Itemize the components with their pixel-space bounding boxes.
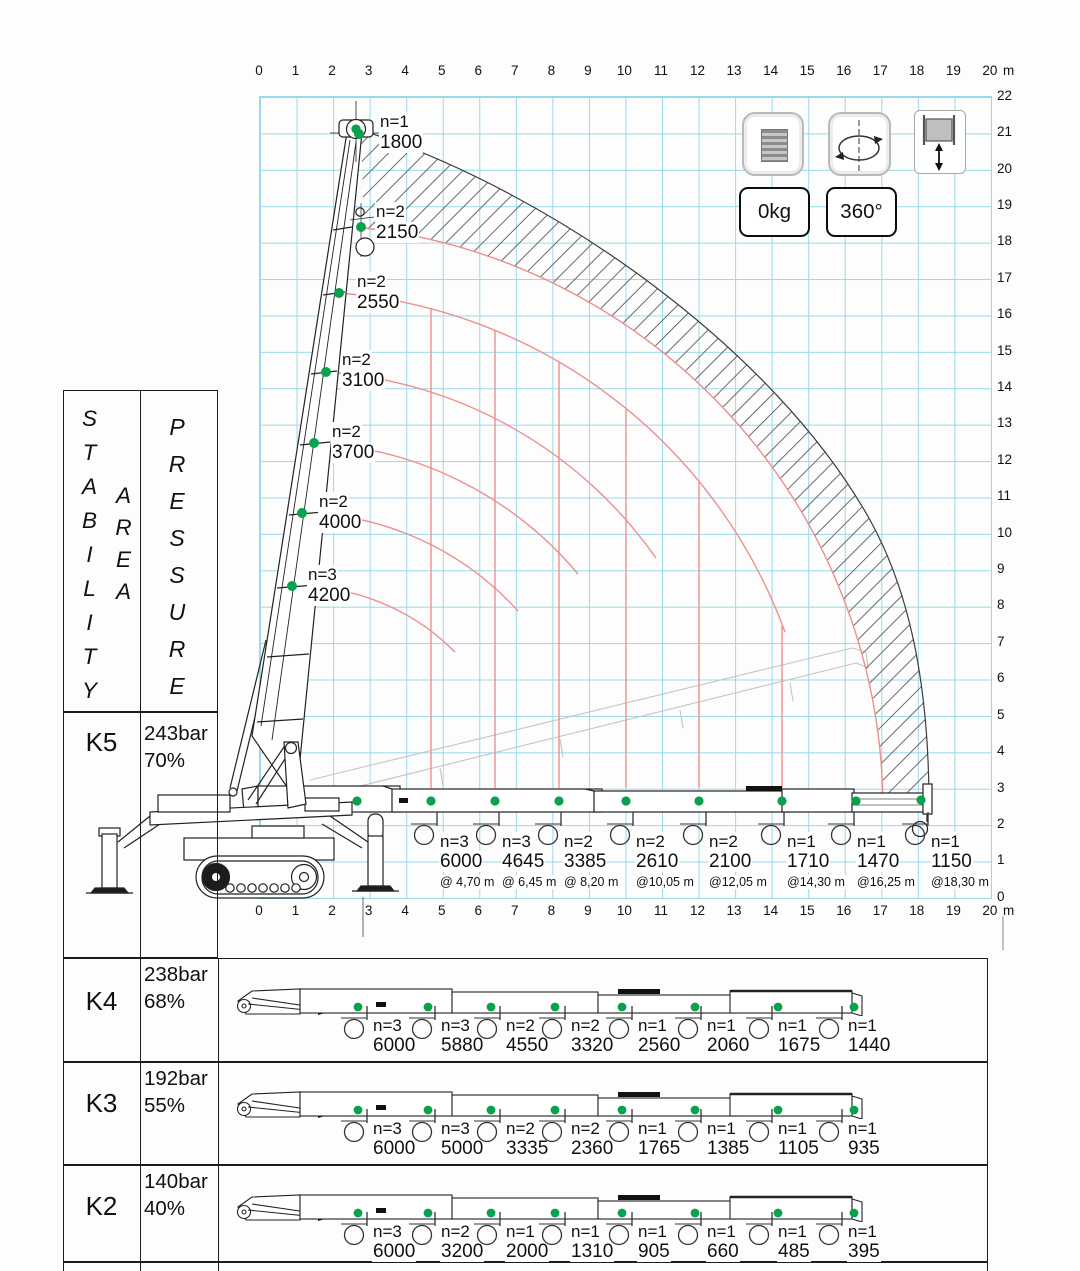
column-divider <box>218 1166 219 1261</box>
hook-icon <box>339 1109 373 1145</box>
row-pressure-k3: 192bar 55% <box>144 1065 208 1119</box>
hook-icon <box>472 1212 506 1248</box>
hook-icon <box>744 1006 778 1042</box>
hook-icon <box>756 812 790 848</box>
hook-icon <box>533 812 567 848</box>
axis-tick: 7 <box>994 624 1012 660</box>
row-key-k3: K3 <box>63 1088 140 1119</box>
hook-icon <box>472 1109 506 1145</box>
table-row-partial-box <box>63 1262 988 1271</box>
axis-tick: 19 <box>935 63 972 78</box>
hook-icon <box>537 1212 571 1248</box>
axis-tick: 2 <box>994 806 1012 842</box>
pressure-percent: 70% <box>144 747 208 774</box>
axis-tick: 13 <box>716 63 753 78</box>
crane-load-chart-page: 01234567891011121314151617181920 m 01234… <box>0 0 1080 1271</box>
header-pressure: PRESSURE <box>163 414 195 710</box>
axis-tick: 5 <box>423 63 460 78</box>
boom-load-label: n=2 3100 <box>341 350 385 391</box>
hook-icon <box>339 1006 373 1042</box>
axis-right: 222120191817161514131211109876543210 <box>994 78 1012 915</box>
radius-load-label: n=1 1150 @18,30 m <box>930 832 990 889</box>
hook-icon <box>407 1109 441 1145</box>
hook-icon <box>814 1006 848 1042</box>
axis-tick: 5 <box>994 697 1012 733</box>
boom-load-label: n=2 2150 <box>375 202 419 243</box>
hook-icon <box>744 1109 778 1145</box>
hook-icon <box>900 812 934 848</box>
pressure-value: 238bar <box>144 961 208 988</box>
row-pressure-k5: 243bar 70% <box>144 720 208 774</box>
axis-tick: 14 <box>752 63 789 78</box>
axis-tick: 4 <box>994 733 1012 769</box>
hook-icon <box>605 812 639 848</box>
axis-tick: 18 <box>994 223 1012 259</box>
row-pressure-k4: 238bar 68% <box>144 961 208 1015</box>
axis-tick: 0 <box>241 63 278 78</box>
axis-tick: 17 <box>862 903 899 918</box>
load-label: n=1 485 <box>777 1222 811 1262</box>
axis-tick: 4 <box>387 903 424 918</box>
axis-tick: 15 <box>994 333 1012 369</box>
axis-tick: 10 <box>994 515 1012 551</box>
axis-tick: 8 <box>533 903 570 918</box>
axis-tick: 3 <box>350 63 387 78</box>
axis-tick: 13 <box>994 405 1012 441</box>
hook-icon <box>537 1006 571 1042</box>
hook-icon <box>604 1109 638 1145</box>
axis-tick: 11 <box>994 478 1012 514</box>
hook-icon <box>407 1212 441 1248</box>
hook-icon <box>471 812 505 848</box>
axis-tick: 2 <box>314 903 351 918</box>
axis-tick: 3 <box>350 903 387 918</box>
boom-load-label: n=2 4000 <box>318 492 362 533</box>
axis-tick: 8 <box>994 587 1012 623</box>
pressure-percent: 68% <box>144 988 208 1015</box>
column-divider <box>218 1063 219 1164</box>
axis-tick: 3 <box>994 770 1012 806</box>
boom-load-label: n=1 1800 <box>379 112 423 153</box>
axis-tick: 15 <box>789 63 826 78</box>
hook-icon <box>604 1006 638 1042</box>
axis-tick: 12 <box>679 903 716 918</box>
hook-icon <box>409 812 443 848</box>
hook-icon <box>673 1212 707 1248</box>
hook-icon <box>339 1212 373 1248</box>
axis-tick: 8 <box>533 63 570 78</box>
axis-tick: 11 <box>643 903 680 918</box>
load-label: n=1 1440 <box>847 1016 891 1056</box>
winch-hook-icon <box>914 110 966 174</box>
axis-tick: 16 <box>825 903 862 918</box>
axis-tick: 19 <box>994 187 1012 223</box>
axis-unit-top: m <box>1003 63 1014 78</box>
slew-glyph <box>830 114 889 174</box>
axis-bottom: 01234567891011121314151617181920 <box>241 903 1008 918</box>
counterweight-plates-glyph <box>761 129 788 162</box>
axis-tick: 5 <box>423 903 460 918</box>
pressure-percent: 55% <box>144 1092 208 1119</box>
counterweight-value-button[interactable]: 0kg <box>739 187 810 237</box>
axis-tick: 19 <box>935 903 972 918</box>
axis-tick: 1 <box>994 842 1012 878</box>
axis-tick: 10 <box>606 63 643 78</box>
axis-tick: 6 <box>460 903 497 918</box>
hook-icon <box>673 1006 707 1042</box>
axis-tick: 14 <box>752 903 789 918</box>
axis-tick: 0 <box>994 879 1012 915</box>
boom-load-label: n=3 4200 <box>307 565 351 606</box>
pressure-percent: 40% <box>144 1195 208 1222</box>
load-label: n=1 935 <box>847 1119 881 1159</box>
column-divider <box>218 1263 219 1271</box>
load-label: n=1 905 <box>637 1222 671 1262</box>
axis-tick: 9 <box>570 903 607 918</box>
header-stability: STABILITY <box>76 406 108 712</box>
load-label: n=1 660 <box>706 1222 740 1262</box>
axis-tick: 7 <box>497 903 534 918</box>
axis-tick: 10 <box>606 903 643 918</box>
axis-tick: 9 <box>570 63 607 78</box>
header-area: AREA <box>110 483 142 611</box>
hook-icon <box>537 1109 571 1145</box>
axis-top: 01234567891011121314151617181920 <box>241 63 1008 78</box>
axis-tick: 16 <box>994 296 1012 332</box>
axis-tick: 7 <box>497 63 534 78</box>
axis-tick: 21 <box>994 114 1012 150</box>
row-key-k2: K2 <box>63 1191 140 1222</box>
axis-tick: 9 <box>994 551 1012 587</box>
axis-tick: 17 <box>862 63 899 78</box>
load-label: n=1 395 <box>847 1222 881 1262</box>
hook-icon <box>472 1006 506 1042</box>
axis-tick: 20 <box>994 151 1012 187</box>
hook-icon <box>826 812 860 848</box>
axis-tick: 17 <box>994 260 1012 296</box>
hook-icon <box>678 812 712 848</box>
axis-tick: 18 <box>899 63 936 78</box>
hook-icon <box>673 1109 707 1145</box>
hook-icon <box>814 1109 848 1145</box>
axis-tick: 6 <box>994 660 1012 696</box>
slew-rotation-icon <box>828 112 891 176</box>
hook-icon <box>744 1212 778 1248</box>
hook-icon <box>814 1212 848 1248</box>
axis-tick: 18 <box>899 903 936 918</box>
pressure-value: 140bar <box>144 1168 208 1195</box>
pressure-value: 243bar <box>144 720 208 747</box>
row-key-k4: K4 <box>63 986 140 1017</box>
axis-tick: 0 <box>241 903 278 918</box>
column-divider <box>140 1263 141 1271</box>
boom-load-label: n=2 3700 <box>331 422 375 463</box>
winch-glyph <box>915 111 965 173</box>
axis-tick: 16 <box>825 63 862 78</box>
axis-tick: 12 <box>994 442 1012 478</box>
boom-load-label: n=2 2550 <box>356 272 400 313</box>
axis-tick: 4 <box>387 63 424 78</box>
counterweight-icon <box>742 112 804 176</box>
axis-tick: 1 <box>277 63 314 78</box>
axis-tick: 14 <box>994 369 1012 405</box>
axis-tick: 13 <box>716 903 753 918</box>
column-divider <box>218 959 219 1061</box>
row-key-k5: K5 <box>63 727 140 758</box>
hook-icon <box>407 1006 441 1042</box>
axis-tick: 15 <box>789 903 826 918</box>
axis-tick: 2 <box>314 63 351 78</box>
axis-tick: 11 <box>643 63 680 78</box>
hook-icon <box>604 1212 638 1248</box>
axis-tick: 22 <box>994 78 1012 114</box>
axis-tick: 12 <box>679 63 716 78</box>
row-pressure-k2: 140bar 40% <box>144 1168 208 1222</box>
slew-range-button[interactable]: 360° <box>826 187 897 237</box>
axis-tick: 1 <box>277 903 314 918</box>
pressure-value: 192bar <box>144 1065 208 1092</box>
axis-tick: 6 <box>460 63 497 78</box>
